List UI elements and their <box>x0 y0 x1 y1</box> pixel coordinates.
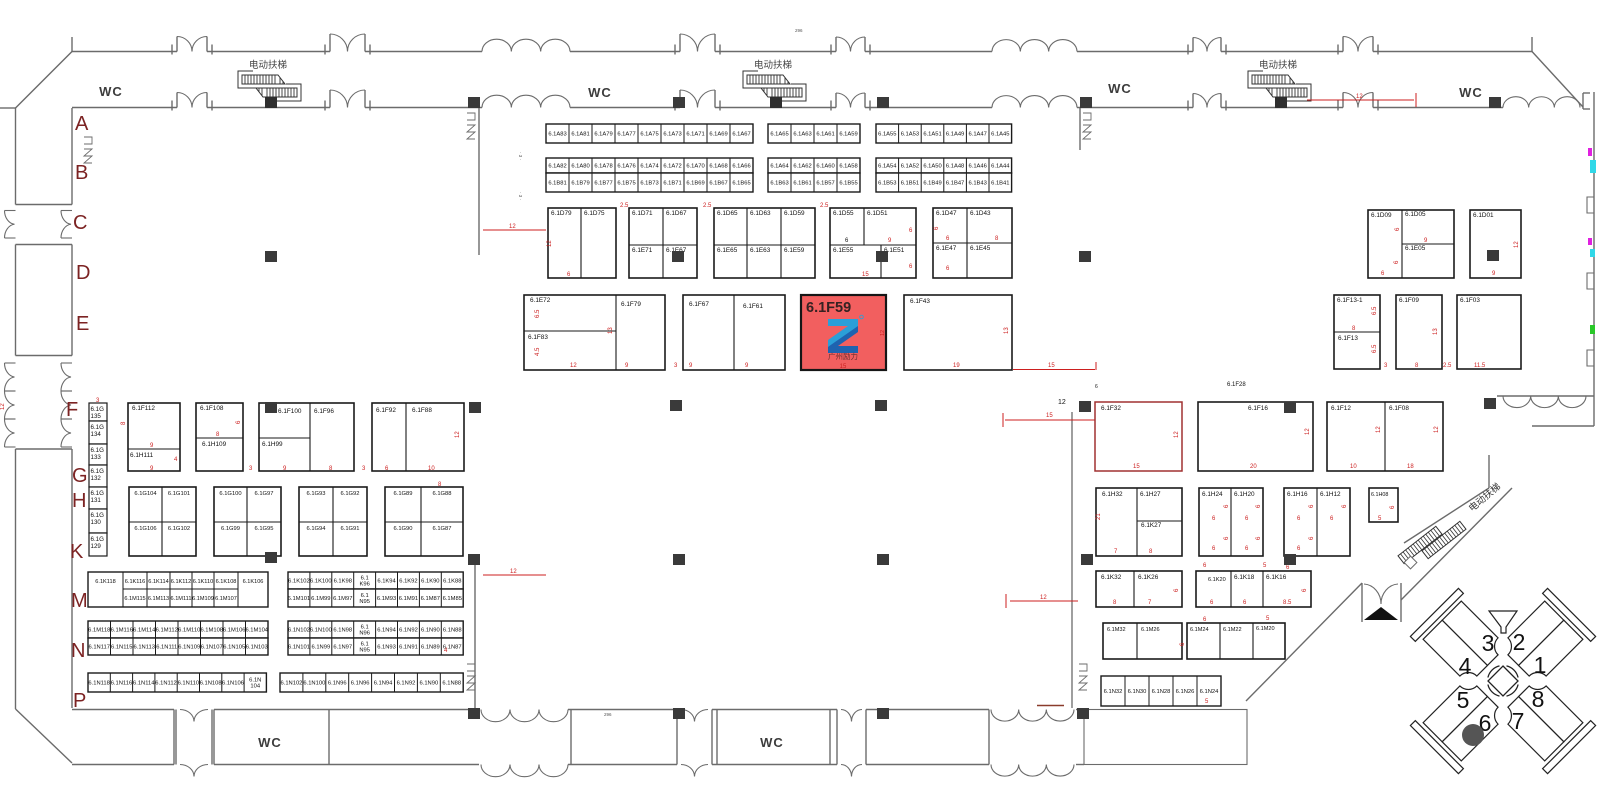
svg-text:6.1K18: 6.1K18 <box>1234 574 1255 581</box>
svg-text:6.1G: 6.1G <box>91 447 105 454</box>
svg-text:6.1M101: 6.1M101 <box>288 596 311 602</box>
svg-text:6.1M99: 6.1M99 <box>311 596 330 602</box>
svg-text:6.1B53: 6.1B53 <box>878 181 896 187</box>
svg-text:6.1D05: 6.1D05 <box>1405 211 1426 218</box>
svg-text:6.1H32: 6.1H32 <box>1102 491 1123 498</box>
svg-text:133: 133 <box>91 454 102 461</box>
svg-text:6.1A50: 6.1A50 <box>923 164 941 170</box>
svg-text:12: 12 <box>547 240 553 247</box>
svg-text:6.1B69: 6.1B69 <box>686 181 704 187</box>
svg-text:6.1M104: 6.1M104 <box>245 628 268 634</box>
svg-text:6.1A68: 6.1A68 <box>709 164 727 170</box>
svg-text:6.1A54: 6.1A54 <box>878 164 897 170</box>
svg-text:12: 12 <box>1305 428 1311 435</box>
svg-text:6.1M87: 6.1M87 <box>421 596 440 602</box>
svg-text:6.1K116: 6.1K116 <box>125 579 145 585</box>
svg-text:6.5: 6.5 <box>535 309 541 318</box>
svg-text:6.1N101: 6.1N101 <box>288 645 310 651</box>
svg-text:4: 4 <box>1459 653 1472 679</box>
svg-text:6.1M113: 6.1M113 <box>148 596 169 602</box>
svg-text:6.1M26: 6.1M26 <box>1141 627 1160 633</box>
svg-text:广州励力: 广州励力 <box>828 351 858 361</box>
svg-text:6.1N103: 6.1N103 <box>246 645 268 651</box>
svg-text:6.1M115: 6.1M115 <box>124 596 145 602</box>
svg-text:电动扶梯: 电动扶梯 <box>1259 59 1298 71</box>
svg-text:21: 21 <box>1096 513 1102 520</box>
svg-text:6.1K112: 6.1K112 <box>171 579 191 585</box>
svg-text:6.1A81: 6.1A81 <box>571 132 589 138</box>
svg-text:6.1K26: 6.1K26 <box>1138 574 1159 581</box>
svg-text:6: 6 <box>1095 384 1098 390</box>
svg-text:6.1D51: 6.1D51 <box>867 210 888 217</box>
svg-text:6.1G90: 6.1G90 <box>393 526 412 532</box>
svg-text:135: 135 <box>91 413 102 420</box>
svg-text:6.1A82: 6.1A82 <box>548 164 566 170</box>
svg-text:6.1F13: 6.1F13 <box>1338 335 1358 342</box>
svg-text:8: 8 <box>1532 686 1545 712</box>
svg-text:6.1A69: 6.1A69 <box>709 132 727 138</box>
svg-text:6.1G101: 6.1G101 <box>168 491 190 497</box>
svg-text:12: 12 <box>509 224 516 230</box>
svg-text:6.1K110: 6.1K110 <box>193 579 213 585</box>
svg-text:6.1B67: 6.1B67 <box>709 181 727 187</box>
svg-text:6.1A55: 6.1A55 <box>878 132 896 138</box>
svg-text:6.1A49: 6.1A49 <box>946 132 964 138</box>
svg-text:6.1M109: 6.1M109 <box>192 596 214 602</box>
svg-text:6.1D67: 6.1D67 <box>666 210 687 217</box>
svg-text:6.1G93: 6.1G93 <box>306 491 325 497</box>
svg-text:6.1A47: 6.1A47 <box>969 132 987 138</box>
svg-text:6.1K98: 6.1K98 <box>334 579 352 585</box>
svg-text:6.1F59: 6.1F59 <box>806 300 851 316</box>
svg-text:6.1A66: 6.1A66 <box>732 164 750 170</box>
svg-text:6.1A75: 6.1A75 <box>640 132 658 138</box>
svg-text:6.1A62: 6.1A62 <box>793 164 811 170</box>
svg-text:6.1N91: 6.1N91 <box>399 645 418 651</box>
svg-text:6.1H109: 6.1H109 <box>202 441 227 448</box>
svg-text:6.1M112: 6.1M112 <box>156 628 178 634</box>
svg-text:12: 12 <box>1434 426 1440 433</box>
svg-text:2.5: 2.5 <box>620 203 629 209</box>
svg-text:13: 13 <box>1433 328 1439 335</box>
svg-text:6.1N102: 6.1N102 <box>280 681 302 687</box>
svg-text:6.1D47: 6.1D47 <box>936 210 957 217</box>
svg-text:6.1D71: 6.1D71 <box>632 210 653 217</box>
svg-text:6.1M85: 6.1M85 <box>443 596 462 602</box>
svg-text:6.1A51: 6.1A51 <box>923 132 941 138</box>
svg-text:6.1D63: 6.1D63 <box>750 210 771 217</box>
svg-text:296: 296 <box>795 28 803 33</box>
svg-text:WC: WC <box>1459 85 1483 100</box>
svg-text:6.1H20: 6.1H20 <box>1234 491 1255 498</box>
svg-text:6.1N24: 6.1N24 <box>1200 689 1219 695</box>
svg-text:6.1F88: 6.1F88 <box>412 407 432 414</box>
svg-text:132: 132 <box>91 475 102 482</box>
svg-text:1: 1 <box>1534 652 1547 678</box>
svg-text:6.1A74: 6.1A74 <box>640 164 659 170</box>
svg-text:6.1G: 6.1G <box>91 512 105 519</box>
svg-text:10: 10 <box>428 466 435 472</box>
svg-text:15: 15 <box>1048 363 1055 369</box>
svg-text:6.1A44: 6.1A44 <box>991 164 1010 170</box>
svg-text:F: F <box>66 399 78 421</box>
svg-text:6.1K90: 6.1K90 <box>421 579 439 585</box>
svg-text:· 3 ·: · 3 · <box>518 152 523 160</box>
svg-text:6.1D55: 6.1D55 <box>833 210 854 217</box>
svg-text:6.1N110: 6.1N110 <box>178 681 200 687</box>
svg-text:6.1B57: 6.1B57 <box>816 181 834 187</box>
svg-text:3: 3 <box>1482 630 1495 656</box>
svg-text:6.1A45: 6.1A45 <box>991 132 1009 138</box>
svg-text:2.5: 2.5 <box>1443 363 1452 369</box>
svg-text:6.1N115: 6.1N115 <box>111 645 133 651</box>
svg-text:12: 12 <box>1514 241 1520 248</box>
svg-text:6.1M110: 6.1M110 <box>178 628 200 634</box>
svg-text:6.1K92: 6.1K92 <box>399 579 417 585</box>
svg-text:6.1K114: 6.1K114 <box>148 579 168 585</box>
svg-text:4.5: 4.5 <box>535 347 541 356</box>
svg-text:6.1G: 6.1G <box>91 406 105 413</box>
svg-text:6.1B55: 6.1B55 <box>839 181 857 187</box>
svg-text:6.1E05: 6.1E05 <box>1405 245 1426 252</box>
svg-text:6.1F03: 6.1F03 <box>1460 297 1480 304</box>
svg-text:12: 12 <box>1040 595 1047 601</box>
svg-text:6.1G94: 6.1G94 <box>306 526 326 532</box>
svg-text:6.1F43: 6.1F43 <box>910 298 930 305</box>
svg-text:6.1H27: 6.1H27 <box>1140 491 1161 498</box>
svg-text:18: 18 <box>1407 464 1414 470</box>
svg-text:6.1B61: 6.1B61 <box>793 181 811 187</box>
svg-text:6.1M91: 6.1M91 <box>399 596 418 602</box>
svg-text:N: N <box>71 640 85 662</box>
svg-text:6.1G: 6.1G <box>91 536 105 543</box>
svg-text:6.1N112: 6.1N112 <box>155 681 177 687</box>
svg-text:6.1N88: 6.1N88 <box>443 628 462 634</box>
svg-text:6.1N96: 6.1N96 <box>328 681 347 687</box>
svg-text:6.1A70: 6.1A70 <box>686 164 704 170</box>
svg-text:6.1H99: 6.1H99 <box>262 441 283 448</box>
svg-text:6.1A78: 6.1A78 <box>594 164 612 170</box>
svg-text:6.1N88: 6.1N88 <box>442 681 461 687</box>
svg-text:2: 2 <box>1513 629 1526 655</box>
svg-text:104: 104 <box>250 684 260 690</box>
svg-text:6.1A83: 6.1A83 <box>548 132 566 138</box>
svg-text:6.1F96: 6.1F96 <box>314 408 334 415</box>
svg-text:6.1F09: 6.1F09 <box>1399 297 1419 304</box>
svg-text:6.1N105: 6.1N105 <box>223 645 245 651</box>
svg-text:6.1A79: 6.1A79 <box>594 132 612 138</box>
svg-text:6.1N116: 6.1N116 <box>111 681 133 687</box>
svg-text:6.1N26: 6.1N26 <box>1176 689 1195 695</box>
svg-text:6.1B41: 6.1B41 <box>991 181 1009 187</box>
svg-text:6.1A58: 6.1A58 <box>839 164 857 170</box>
svg-text:6.1H24: 6.1H24 <box>1202 491 1223 498</box>
svg-text:6.1N114: 6.1N114 <box>133 681 155 687</box>
svg-text:6.1M22: 6.1M22 <box>1223 627 1242 633</box>
svg-text:6.1N102: 6.1N102 <box>288 628 310 634</box>
svg-text:6.1G88: 6.1G88 <box>432 491 451 497</box>
svg-text:6.1F32: 6.1F32 <box>1101 405 1121 412</box>
svg-text:6.1F61: 6.1F61 <box>743 303 763 310</box>
svg-text:6.1E59: 6.1E59 <box>784 247 805 254</box>
svg-text:电动扶梯: 电动扶梯 <box>249 59 288 71</box>
svg-text:6.1A80: 6.1A80 <box>571 164 589 170</box>
svg-text:6.1G104: 6.1G104 <box>134 491 157 497</box>
svg-text:6.1G: 6.1G <box>91 424 105 431</box>
svg-text:WC: WC <box>588 85 612 100</box>
svg-text:6.1M111: 6.1M111 <box>171 596 192 602</box>
svg-text:N95: N95 <box>359 599 370 605</box>
svg-text:15: 15 <box>862 272 869 278</box>
svg-text:C: C <box>73 212 87 234</box>
svg-text:N96: N96 <box>359 631 370 637</box>
svg-text:6.1B51: 6.1B51 <box>901 181 919 187</box>
svg-text:6.1F83: 6.1F83 <box>528 334 548 341</box>
svg-text:6.1D01: 6.1D01 <box>1473 212 1494 219</box>
svg-text:6.1N106: 6.1N106 <box>222 681 244 687</box>
svg-text:K96: K96 <box>359 582 369 588</box>
svg-text:6.1N94: 6.1N94 <box>377 628 396 634</box>
svg-text:6.5: 6.5 <box>1372 344 1378 353</box>
svg-text:6.1M20: 6.1M20 <box>1256 626 1275 632</box>
svg-text:6.1A53: 6.1A53 <box>901 132 919 138</box>
svg-text:2.5: 2.5 <box>820 203 829 209</box>
svg-text:6.1A72: 6.1A72 <box>663 164 681 170</box>
svg-text:6.1M32: 6.1M32 <box>1107 627 1126 633</box>
svg-text:6.1B63: 6.1B63 <box>770 181 788 187</box>
svg-text:12: 12 <box>1376 426 1382 433</box>
svg-text:129: 129 <box>91 543 102 550</box>
svg-text:6.1M108: 6.1M108 <box>200 628 223 634</box>
svg-text:6.1F16: 6.1F16 <box>1248 405 1268 412</box>
svg-text:7: 7 <box>1512 708 1525 734</box>
svg-text:5: 5 <box>1457 687 1470 713</box>
svg-text:13: 13 <box>1004 327 1010 334</box>
svg-text:12: 12 <box>1058 399 1066 406</box>
svg-text:6.1A61: 6.1A61 <box>816 132 834 138</box>
svg-text:6.1K20: 6.1K20 <box>1208 577 1226 583</box>
svg-text:6.1G91: 6.1G91 <box>340 526 359 532</box>
svg-text:6.1A59: 6.1A59 <box>839 132 857 138</box>
svg-text:6.1N100: 6.1N100 <box>310 628 332 634</box>
svg-text:6.1K118: 6.1K118 <box>95 579 115 585</box>
svg-text:6.1D59: 6.1D59 <box>784 210 805 217</box>
svg-text:6.1N32: 6.1N32 <box>1104 689 1123 695</box>
svg-text:6.1B43: 6.1B43 <box>969 181 987 187</box>
svg-text:6.1A67: 6.1A67 <box>732 132 750 138</box>
svg-text:6.1E47: 6.1E47 <box>936 245 957 252</box>
svg-text:6.1F08: 6.1F08 <box>1389 405 1409 412</box>
svg-text:6.1K102: 6.1K102 <box>288 579 310 585</box>
svg-text:WC: WC <box>99 84 123 99</box>
svg-text:6.1N97: 6.1N97 <box>333 645 352 651</box>
svg-text:6.1F112: 6.1F112 <box>132 405 155 412</box>
svg-text:15: 15 <box>1046 413 1053 419</box>
svg-text:6.1N93: 6.1N93 <box>377 645 396 651</box>
svg-text:12: 12 <box>880 330 886 336</box>
svg-text:6.1B75: 6.1B75 <box>617 181 635 187</box>
svg-text:6.1N28: 6.1N28 <box>1152 689 1171 695</box>
svg-text:6.1B47: 6.1B47 <box>946 181 964 187</box>
svg-text:6.1A76: 6.1A76 <box>617 164 635 170</box>
svg-text:6.1A63: 6.1A63 <box>793 132 811 138</box>
svg-text:12: 12 <box>1174 431 1180 438</box>
svg-text:6.1N100: 6.1N100 <box>303 681 325 687</box>
svg-text:134: 134 <box>91 431 102 438</box>
svg-text:6.1M106: 6.1M106 <box>223 628 246 634</box>
svg-text:6.1G: 6.1G <box>91 468 105 475</box>
svg-text:WC: WC <box>258 735 282 750</box>
svg-text:D: D <box>76 262 90 284</box>
svg-text:6.1K94: 6.1K94 <box>377 579 396 585</box>
svg-text:6.1B81: 6.1B81 <box>548 181 566 187</box>
svg-text:6.1D79: 6.1D79 <box>551 210 572 217</box>
svg-text:6.1K32: 6.1K32 <box>1101 574 1122 581</box>
svg-text:6.1H111: 6.1H111 <box>130 452 154 459</box>
svg-text:6.1N117: 6.1N117 <box>89 645 111 651</box>
svg-text:19: 19 <box>953 363 960 369</box>
svg-text:6.1N92: 6.1N92 <box>399 628 418 634</box>
svg-text:12: 12 <box>570 363 577 369</box>
svg-text:15: 15 <box>840 364 847 370</box>
svg-text:2.5: 2.5 <box>703 203 712 209</box>
svg-text:6.1N98: 6.1N98 <box>333 628 352 634</box>
svg-text:6.1E71: 6.1E71 <box>632 247 653 254</box>
svg-text:6.1D65: 6.1D65 <box>717 210 738 217</box>
svg-text:6.1N92: 6.1N92 <box>397 681 416 687</box>
svg-text:12: 12 <box>1356 94 1363 100</box>
svg-text:6.1M97: 6.1M97 <box>333 596 352 602</box>
svg-text:6.1E65: 6.1E65 <box>717 247 738 254</box>
svg-text:6.1N30: 6.1N30 <box>1128 689 1147 695</box>
svg-text:6.1F28: 6.1F28 <box>1227 382 1246 388</box>
svg-text:6.1F108: 6.1F108 <box>200 405 224 412</box>
svg-text:6.1F13-1: 6.1F13-1 <box>1337 297 1363 304</box>
svg-text:6.1G95: 6.1G95 <box>254 526 273 532</box>
svg-text:6.1B73: 6.1B73 <box>640 181 658 187</box>
svg-text:电动扶梯: 电动扶梯 <box>754 59 793 71</box>
svg-text:6.1M107: 6.1M107 <box>215 596 237 602</box>
svg-text:6.1N113: 6.1N113 <box>134 645 156 651</box>
svg-text:6.1G100: 6.1G100 <box>219 491 241 497</box>
svg-text:6.1F79: 6.1F79 <box>621 301 641 308</box>
svg-text:6.1A77: 6.1A77 <box>617 132 635 138</box>
svg-text:· 3 ·: · 3 · <box>518 192 523 200</box>
svg-text:6.1M93: 6.1M93 <box>377 596 396 602</box>
svg-text:B: B <box>75 162 88 184</box>
svg-text:6.1G97: 6.1G97 <box>254 491 273 497</box>
svg-text:20: 20 <box>1250 464 1257 470</box>
svg-text:6.1E55: 6.1E55 <box>833 247 854 254</box>
svg-text:N95: N95 <box>359 648 370 654</box>
svg-text:6.1K27: 6.1K27 <box>1141 522 1162 529</box>
svg-text:6.1A73: 6.1A73 <box>663 132 681 138</box>
svg-text:6.1B71: 6.1B71 <box>663 181 681 187</box>
svg-text:131: 131 <box>91 497 102 504</box>
svg-text:6.1B49: 6.1B49 <box>923 181 941 187</box>
svg-text:6.1A64: 6.1A64 <box>770 164 789 170</box>
svg-text:6.1E63: 6.1E63 <box>750 247 771 254</box>
svg-text:12: 12 <box>455 431 461 438</box>
svg-text:6.1D75: 6.1D75 <box>584 210 605 217</box>
svg-text:6.5: 6.5 <box>1372 306 1378 315</box>
svg-text:6.1E45: 6.1E45 <box>970 245 991 252</box>
svg-text:6.1A46: 6.1A46 <box>969 164 987 170</box>
svg-text:A: A <box>75 113 89 135</box>
svg-text:6.1K106: 6.1K106 <box>243 579 264 585</box>
svg-text:K: K <box>70 541 84 563</box>
svg-text:6.1N109: 6.1N109 <box>178 645 200 651</box>
svg-text:6.1K100: 6.1K100 <box>310 579 332 585</box>
svg-text:6.1F92: 6.1F92 <box>376 407 396 414</box>
svg-text:6.1E72: 6.1E72 <box>530 297 551 304</box>
svg-text:6.1A71: 6.1A71 <box>686 132 704 138</box>
svg-text:6.1A60: 6.1A60 <box>816 164 834 170</box>
svg-text:6.1K16: 6.1K16 <box>1266 574 1287 581</box>
svg-text:6.1N89: 6.1N89 <box>421 645 440 651</box>
svg-text:6.1M114: 6.1M114 <box>133 628 156 634</box>
svg-text:6.1N90: 6.1N90 <box>421 628 440 634</box>
svg-text:296: 296 <box>604 712 612 717</box>
svg-text:6.1K108: 6.1K108 <box>216 579 237 585</box>
svg-text:6.1M24: 6.1M24 <box>1190 627 1209 633</box>
svg-text:6.1G: 6.1G <box>91 490 105 497</box>
svg-text:10: 10 <box>1350 464 1357 470</box>
svg-text:6.1N111: 6.1N111 <box>156 645 177 651</box>
svg-text:6.1N118: 6.1N118 <box>88 681 110 687</box>
svg-text:12: 12 <box>0 403 6 410</box>
svg-text:6.1N90: 6.1N90 <box>419 681 438 687</box>
svg-text:6.1G106: 6.1G106 <box>134 526 156 532</box>
svg-text:130: 130 <box>91 519 102 526</box>
svg-text:6.1H16: 6.1H16 <box>1287 491 1308 498</box>
svg-text:6.1N108: 6.1N108 <box>200 681 222 687</box>
svg-text:6.1G87: 6.1G87 <box>432 526 451 532</box>
svg-text:15: 15 <box>1133 464 1140 470</box>
svg-text:WC: WC <box>1108 81 1132 96</box>
svg-text:6.1G102: 6.1G102 <box>168 526 190 532</box>
svg-text:6.1B65: 6.1B65 <box>732 181 750 187</box>
svg-text:6.1G99: 6.1G99 <box>221 526 240 532</box>
svg-text:M: M <box>71 590 88 612</box>
svg-text:11.5: 11.5 <box>1474 363 1486 369</box>
svg-text:6.1M116: 6.1M116 <box>111 628 133 634</box>
svg-text:E: E <box>76 313 89 335</box>
svg-text:6.1H08: 6.1H08 <box>1371 492 1388 498</box>
svg-text:6.1N107: 6.1N107 <box>201 645 223 651</box>
svg-text:G: G <box>72 465 88 487</box>
svg-text:6.1G92: 6.1G92 <box>340 491 359 497</box>
svg-text:6.1H12: 6.1H12 <box>1320 491 1341 498</box>
svg-text:6.1B79: 6.1B79 <box>571 181 589 187</box>
svg-text:P: P <box>73 690 86 712</box>
svg-text:6.1N96: 6.1N96 <box>351 681 370 687</box>
svg-text:6.1M118: 6.1M118 <box>88 628 110 634</box>
svg-text:6.1K88: 6.1K88 <box>443 579 461 585</box>
svg-text:6.1B77: 6.1B77 <box>594 181 612 187</box>
svg-text:H: H <box>72 490 86 512</box>
svg-text:6.1D09: 6.1D09 <box>1371 212 1392 219</box>
svg-text:6.1A48: 6.1A48 <box>946 164 964 170</box>
svg-text:6.1D43: 6.1D43 <box>970 210 991 217</box>
svg-text:6.1F67: 6.1F67 <box>689 301 709 308</box>
svg-text:6.1G89: 6.1G89 <box>393 491 412 497</box>
svg-text:13: 13 <box>608 327 614 334</box>
svg-text:6.1A52: 6.1A52 <box>901 164 919 170</box>
svg-text:6.1A65: 6.1A65 <box>770 132 788 138</box>
svg-text:12: 12 <box>510 569 517 575</box>
svg-text:6.1N94: 6.1N94 <box>374 681 393 687</box>
